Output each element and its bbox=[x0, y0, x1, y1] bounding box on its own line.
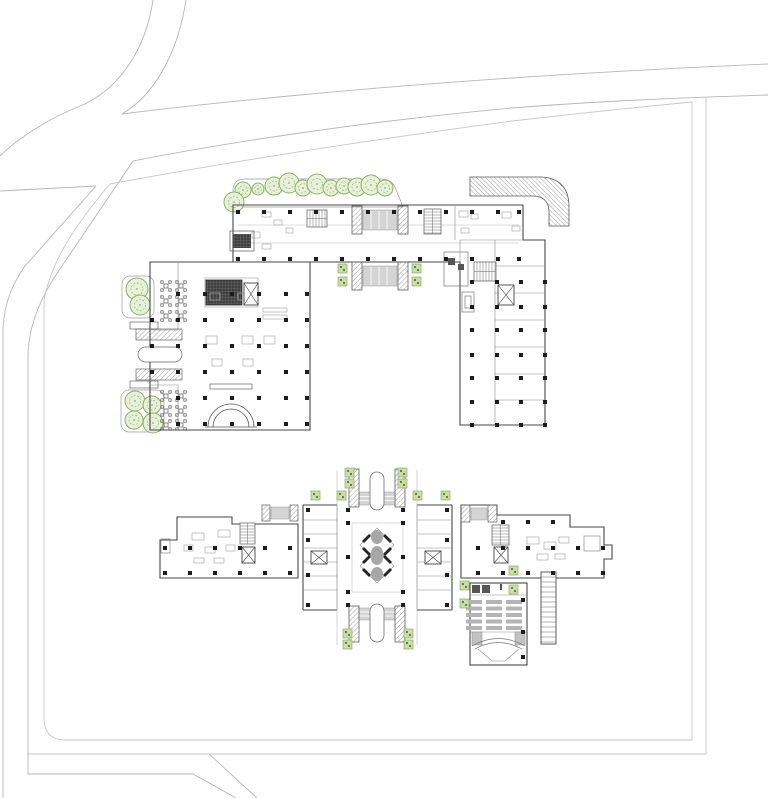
chair bbox=[169, 420, 171, 422]
tree-icon bbox=[130, 295, 150, 315]
furniture-icon bbox=[559, 537, 569, 543]
planter-box bbox=[345, 468, 354, 477]
seat-row bbox=[506, 626, 522, 630]
column-marker bbox=[517, 257, 521, 261]
planter-box bbox=[441, 491, 450, 500]
porch-pier bbox=[461, 505, 470, 522]
furniture-icon bbox=[252, 232, 260, 238]
seat-row bbox=[506, 613, 522, 617]
west-wing-outline bbox=[160, 517, 298, 578]
porch-pier bbox=[488, 505, 497, 522]
column-marker bbox=[150, 344, 154, 348]
porch-pier bbox=[352, 262, 362, 290]
tree-center bbox=[133, 419, 135, 421]
column-marker bbox=[230, 292, 234, 296]
column-marker bbox=[262, 257, 266, 261]
planter-dot bbox=[403, 473, 405, 475]
table-top bbox=[164, 314, 168, 318]
planter-box bbox=[343, 629, 352, 638]
planter-box bbox=[460, 581, 469, 590]
column-marker bbox=[543, 376, 547, 380]
column-marker bbox=[230, 370, 234, 374]
dining-table-icon bbox=[176, 296, 186, 306]
table-top bbox=[179, 299, 183, 303]
table-top bbox=[179, 284, 183, 288]
planter-box bbox=[413, 491, 422, 500]
planter-dot bbox=[340, 266, 342, 268]
column-marker bbox=[284, 422, 288, 426]
planter-dot bbox=[350, 484, 352, 486]
chair bbox=[184, 391, 186, 393]
planter-box bbox=[460, 599, 469, 608]
planter-box bbox=[398, 479, 407, 488]
chair bbox=[161, 304, 163, 306]
column-marker bbox=[444, 257, 448, 261]
chair bbox=[161, 414, 163, 416]
column-marker bbox=[203, 318, 207, 322]
furniture-icon bbox=[274, 220, 282, 225]
chair bbox=[161, 399, 163, 401]
upper-building bbox=[121, 173, 569, 433]
road-arc-outer bbox=[0, 0, 153, 156]
planter-icon bbox=[412, 277, 421, 286]
porch-pier bbox=[398, 206, 408, 234]
chair bbox=[169, 289, 171, 291]
column-marker bbox=[203, 292, 207, 296]
column-marker bbox=[526, 571, 530, 575]
column-marker bbox=[346, 508, 350, 512]
planter-box bbox=[509, 566, 518, 575]
dining-table-icon bbox=[176, 281, 186, 291]
column-marker bbox=[263, 546, 267, 550]
planter-icon bbox=[509, 566, 518, 575]
road-bottom-branch-a bbox=[28, 774, 236, 798]
column-marker bbox=[305, 292, 309, 296]
column-marker bbox=[346, 603, 350, 607]
elevator-icon bbox=[242, 547, 255, 563]
tree-center bbox=[316, 183, 318, 185]
planter-dot bbox=[345, 642, 347, 644]
column-marker bbox=[305, 318, 309, 322]
planter-dot bbox=[446, 496, 448, 498]
column-marker bbox=[236, 210, 240, 214]
upper-interior-lines bbox=[150, 205, 545, 430]
chair bbox=[169, 391, 171, 393]
seat-row bbox=[506, 620, 522, 624]
furniture-icon bbox=[555, 554, 565, 559]
planter-box bbox=[509, 585, 518, 594]
site-plan-canvas bbox=[0, 0, 768, 798]
planter-dot bbox=[417, 282, 419, 284]
column-marker bbox=[236, 257, 240, 261]
column-marker bbox=[601, 571, 605, 575]
planter-box bbox=[404, 629, 413, 638]
column-marker bbox=[418, 257, 422, 261]
furniture-icon bbox=[212, 359, 222, 366]
planter-dot bbox=[316, 496, 318, 498]
chair bbox=[184, 414, 186, 416]
column-marker bbox=[314, 210, 318, 214]
tree-center bbox=[370, 184, 372, 186]
column-marker bbox=[495, 305, 499, 309]
column-marker bbox=[526, 520, 530, 524]
tree-icon bbox=[125, 411, 143, 429]
porch-pier bbox=[262, 505, 270, 521]
planter-dot bbox=[400, 481, 402, 483]
chair bbox=[161, 296, 163, 298]
furniture-icon bbox=[263, 315, 287, 319]
upper-west-entry bbox=[130, 322, 182, 388]
column-marker bbox=[551, 571, 555, 575]
elevator-icon bbox=[425, 551, 441, 564]
planter-dot bbox=[414, 266, 416, 268]
column-marker bbox=[188, 571, 192, 575]
chair bbox=[169, 311, 171, 313]
column-marker bbox=[401, 521, 405, 525]
furniture-icon bbox=[459, 211, 468, 217]
planter-icon bbox=[460, 599, 469, 608]
column-marker bbox=[519, 423, 523, 427]
column-marker bbox=[476, 546, 480, 550]
column-marker bbox=[470, 400, 474, 404]
column-marker bbox=[213, 571, 217, 575]
planter-dot bbox=[514, 571, 516, 573]
lower-north-entrance bbox=[349, 469, 405, 510]
column-marker bbox=[543, 400, 547, 404]
furniture-icon bbox=[527, 537, 539, 544]
column-marker bbox=[262, 210, 266, 214]
column-marker bbox=[495, 423, 499, 427]
column-marker bbox=[306, 508, 310, 512]
entry-oval bbox=[370, 604, 384, 642]
east-wing-porch bbox=[461, 505, 497, 522]
planter-icon bbox=[338, 264, 347, 273]
upper-columns bbox=[150, 210, 547, 427]
planter-dot bbox=[339, 493, 341, 495]
furniture-icon bbox=[471, 214, 478, 219]
tree-center bbox=[356, 186, 358, 188]
column-marker bbox=[470, 353, 474, 357]
chair bbox=[184, 289, 186, 291]
column-marker bbox=[601, 546, 605, 550]
column-marker bbox=[495, 280, 499, 284]
column-marker bbox=[519, 328, 523, 332]
road-network bbox=[0, 0, 768, 798]
chair bbox=[184, 406, 186, 408]
planter-icon bbox=[343, 640, 352, 649]
chair bbox=[161, 281, 163, 283]
column-marker bbox=[501, 571, 505, 575]
column-marker bbox=[526, 546, 530, 550]
upper-south-porch bbox=[352, 262, 408, 290]
column-marker bbox=[392, 210, 396, 214]
furniture-icon bbox=[214, 558, 224, 563]
dining-table-icon bbox=[161, 406, 171, 416]
column-marker bbox=[230, 318, 234, 322]
column-marker bbox=[257, 292, 261, 296]
porch-pier bbox=[398, 262, 408, 290]
tree-center bbox=[330, 187, 332, 189]
planter-icon bbox=[345, 468, 354, 477]
table-top bbox=[179, 314, 183, 318]
furniture-icon bbox=[242, 336, 253, 344]
column-marker bbox=[519, 400, 523, 404]
chair bbox=[169, 414, 171, 416]
table-top bbox=[164, 423, 168, 427]
planter-dot bbox=[400, 470, 402, 472]
column-marker bbox=[495, 400, 499, 404]
planter-dot bbox=[414, 279, 416, 281]
planter-icon bbox=[441, 491, 450, 500]
planter-icon bbox=[311, 491, 320, 500]
column-marker bbox=[401, 555, 405, 559]
furniture-icon bbox=[243, 359, 253, 366]
planter-box bbox=[338, 277, 347, 286]
chair bbox=[184, 304, 186, 306]
seat-row bbox=[466, 626, 482, 630]
column-marker bbox=[366, 210, 370, 214]
tree-center bbox=[288, 182, 290, 184]
dining-table-icon bbox=[161, 296, 171, 306]
tree-center bbox=[134, 400, 136, 402]
column-marker bbox=[257, 396, 261, 400]
column-marker bbox=[257, 422, 261, 426]
column-marker bbox=[288, 571, 292, 575]
furniture-icon bbox=[218, 530, 230, 537]
column-marker bbox=[288, 210, 292, 214]
column-marker bbox=[284, 344, 288, 348]
column-marker bbox=[576, 546, 580, 550]
column-marker bbox=[519, 376, 523, 380]
seat-row bbox=[506, 607, 522, 611]
dining-table-icon bbox=[161, 391, 171, 401]
column-marker bbox=[519, 305, 523, 309]
furniture-icon bbox=[461, 228, 469, 233]
column-marker bbox=[444, 210, 448, 214]
table-top bbox=[164, 409, 168, 413]
column-marker bbox=[284, 292, 288, 296]
table-top bbox=[164, 394, 168, 398]
column-marker bbox=[203, 370, 207, 374]
furniture-icon bbox=[264, 336, 275, 344]
column-marker bbox=[576, 571, 580, 575]
tree-icon bbox=[377, 180, 393, 196]
seat-row bbox=[466, 620, 482, 624]
road-top-upper-edge bbox=[122, 64, 768, 114]
planter-icon bbox=[398, 479, 407, 488]
furniture-icon bbox=[194, 558, 204, 563]
planter-dot bbox=[348, 634, 350, 636]
planter-dot bbox=[443, 493, 445, 495]
planter-icon bbox=[509, 585, 518, 594]
canopy-steps bbox=[363, 266, 397, 286]
dining-table-icon bbox=[161, 311, 171, 321]
planter-dot bbox=[313, 493, 315, 495]
column-marker bbox=[306, 538, 310, 542]
planter-dot bbox=[343, 269, 345, 271]
planter-icon bbox=[337, 491, 346, 500]
entry-oval bbox=[370, 472, 384, 510]
column-marker bbox=[401, 603, 405, 607]
porch-pier bbox=[290, 505, 298, 521]
road-diagonal-left-edge bbox=[3, 186, 96, 798]
seat-row bbox=[486, 607, 502, 611]
column-marker bbox=[346, 555, 350, 559]
tree-center bbox=[384, 187, 386, 189]
column-marker bbox=[230, 422, 234, 426]
planter-icon bbox=[343, 629, 352, 638]
column-marker bbox=[470, 257, 474, 261]
column-marker bbox=[445, 538, 449, 542]
table-top bbox=[164, 284, 168, 288]
column-marker bbox=[340, 210, 344, 214]
stair-icon bbox=[424, 209, 441, 234]
column-marker bbox=[230, 396, 234, 400]
tree-center bbox=[139, 304, 141, 306]
column-marker bbox=[176, 344, 180, 348]
column-marker bbox=[519, 280, 523, 284]
entry-oval bbox=[138, 347, 182, 362]
column-marker bbox=[496, 210, 500, 214]
column-marker bbox=[470, 305, 474, 309]
column-marker bbox=[150, 318, 154, 322]
column-marker bbox=[284, 396, 288, 400]
lower-south-entrance bbox=[349, 604, 405, 642]
tree-center bbox=[233, 201, 235, 203]
chair bbox=[169, 319, 171, 321]
column-marker bbox=[445, 508, 449, 512]
planter-dot bbox=[514, 590, 516, 592]
table-top bbox=[179, 409, 183, 413]
column-marker bbox=[176, 318, 180, 322]
stair-icon bbox=[474, 262, 496, 281]
seat-row bbox=[486, 613, 502, 617]
planter-dot bbox=[406, 642, 408, 644]
tree-icon bbox=[143, 396, 161, 414]
planter-dot bbox=[409, 645, 411, 647]
chair bbox=[169, 399, 171, 401]
column-marker bbox=[346, 521, 350, 525]
column-marker bbox=[366, 257, 370, 261]
chair bbox=[184, 319, 186, 321]
planter-dot bbox=[511, 587, 513, 589]
column-marker bbox=[418, 210, 422, 214]
tree-icon bbox=[125, 391, 145, 411]
seat-row bbox=[466, 613, 482, 617]
column-marker bbox=[521, 630, 525, 634]
road-arc-inner bbox=[122, 0, 186, 114]
column-marker bbox=[203, 422, 207, 426]
column-marker bbox=[238, 571, 242, 575]
planter-dot bbox=[462, 583, 464, 585]
column-marker bbox=[501, 520, 505, 524]
column-marker bbox=[176, 422, 180, 426]
upper-north-porch bbox=[352, 206, 408, 234]
planter-dot bbox=[343, 282, 345, 284]
column-marker bbox=[176, 396, 180, 400]
column-marker bbox=[305, 344, 309, 348]
seat-row bbox=[486, 626, 502, 630]
kitchen-equipment-block bbox=[206, 280, 242, 305]
chair bbox=[184, 311, 186, 313]
column-marker bbox=[257, 344, 261, 348]
column-marker bbox=[176, 292, 180, 296]
column-marker bbox=[495, 328, 499, 332]
elevator-icon bbox=[244, 283, 258, 305]
planter-icon bbox=[460, 581, 469, 590]
column-marker bbox=[401, 590, 405, 594]
column-marker bbox=[257, 318, 261, 322]
tree-center bbox=[273, 185, 275, 187]
chair bbox=[184, 281, 186, 283]
column-marker bbox=[230, 344, 234, 348]
column-marker bbox=[163, 546, 167, 550]
column-marker bbox=[213, 546, 217, 550]
column-marker bbox=[551, 546, 555, 550]
planter-box bbox=[311, 491, 320, 500]
tree-center bbox=[151, 404, 153, 406]
furniture-icon bbox=[206, 336, 217, 344]
planter-box bbox=[412, 277, 421, 286]
column-marker bbox=[470, 423, 474, 427]
planter-dot bbox=[417, 269, 419, 271]
planter-dot bbox=[409, 634, 411, 636]
column-marker bbox=[496, 257, 500, 261]
column-marker bbox=[163, 571, 167, 575]
planter-dot bbox=[403, 484, 405, 486]
column-marker bbox=[176, 370, 180, 374]
planter-dot bbox=[347, 481, 349, 483]
planter-dot bbox=[342, 496, 344, 498]
tree-center bbox=[136, 288, 138, 290]
stair-icon bbox=[492, 525, 509, 545]
porch-pier bbox=[395, 606, 405, 642]
column-marker bbox=[203, 396, 207, 400]
chair bbox=[184, 296, 186, 298]
chair bbox=[169, 296, 171, 298]
planter-box bbox=[345, 479, 354, 488]
seat-row bbox=[506, 600, 522, 604]
column-marker bbox=[543, 423, 547, 427]
column-marker bbox=[521, 598, 525, 602]
column-marker bbox=[284, 318, 288, 322]
road-stub-left bbox=[0, 186, 96, 191]
planter-icon bbox=[398, 468, 407, 477]
tree-center bbox=[242, 189, 244, 191]
road-bottom-branch-b bbox=[209, 754, 257, 798]
atrium-escalator-diamond bbox=[360, 549, 394, 583]
column-marker bbox=[470, 280, 474, 284]
chair bbox=[169, 304, 171, 306]
planter-icon bbox=[404, 629, 413, 638]
planter-dot bbox=[347, 470, 349, 472]
column-marker bbox=[521, 655, 525, 659]
stair-icon bbox=[240, 523, 255, 544]
ladder-strip-frame bbox=[541, 572, 556, 644]
tree-icon bbox=[252, 183, 264, 195]
planter-dot bbox=[348, 645, 350, 647]
column-marker bbox=[543, 353, 547, 357]
chair bbox=[184, 420, 186, 422]
planter-box bbox=[338, 264, 347, 273]
planter-icon bbox=[412, 264, 421, 273]
entry-ramp bbox=[136, 329, 182, 340]
planter-icon bbox=[404, 640, 413, 649]
dining-table-icon bbox=[161, 281, 171, 291]
planter-dot bbox=[406, 631, 408, 633]
chair bbox=[161, 311, 163, 313]
tree-center bbox=[152, 422, 154, 424]
